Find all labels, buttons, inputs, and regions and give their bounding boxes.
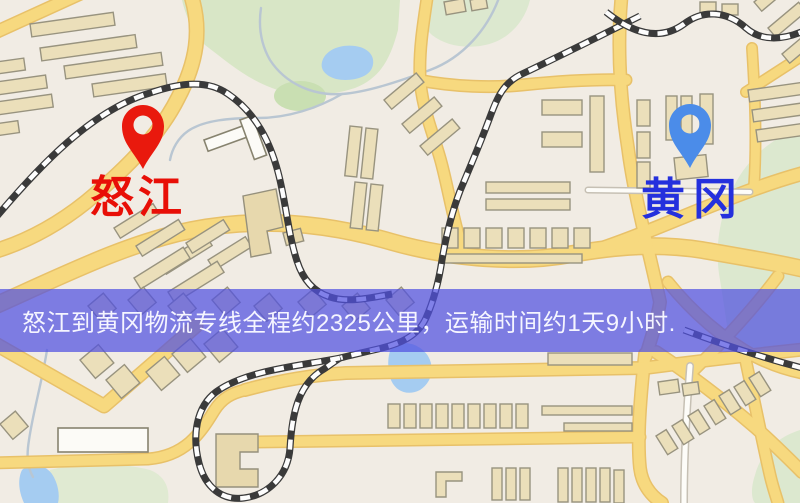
route-info-banner: 怒江到黄冈物流专线全程约2325公里，运输时间约1天9小时. [0, 289, 800, 352]
origin-city-label: 怒江 [90, 176, 186, 220]
destination-city-label: 黄冈 [641, 178, 745, 222]
map-canvas [0, 0, 800, 503]
map-screenshot: 怒江 黄冈 怒江到黄冈物流专线全程约2325公里，运输时间约1天9小时. [0, 0, 800, 503]
route-info-text: 怒江到黄冈物流专线全程约2325公里，运输时间约1天9小时. [0, 303, 676, 338]
